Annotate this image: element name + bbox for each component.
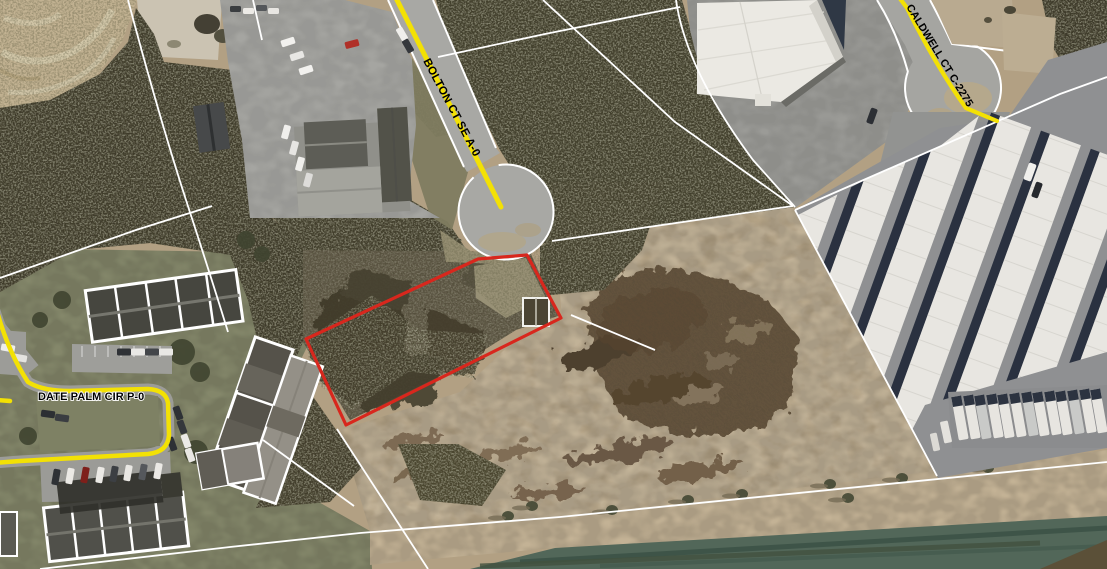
svg-text:DATE PALM CIR P-0: DATE PALM CIR P-0 xyxy=(38,391,144,403)
